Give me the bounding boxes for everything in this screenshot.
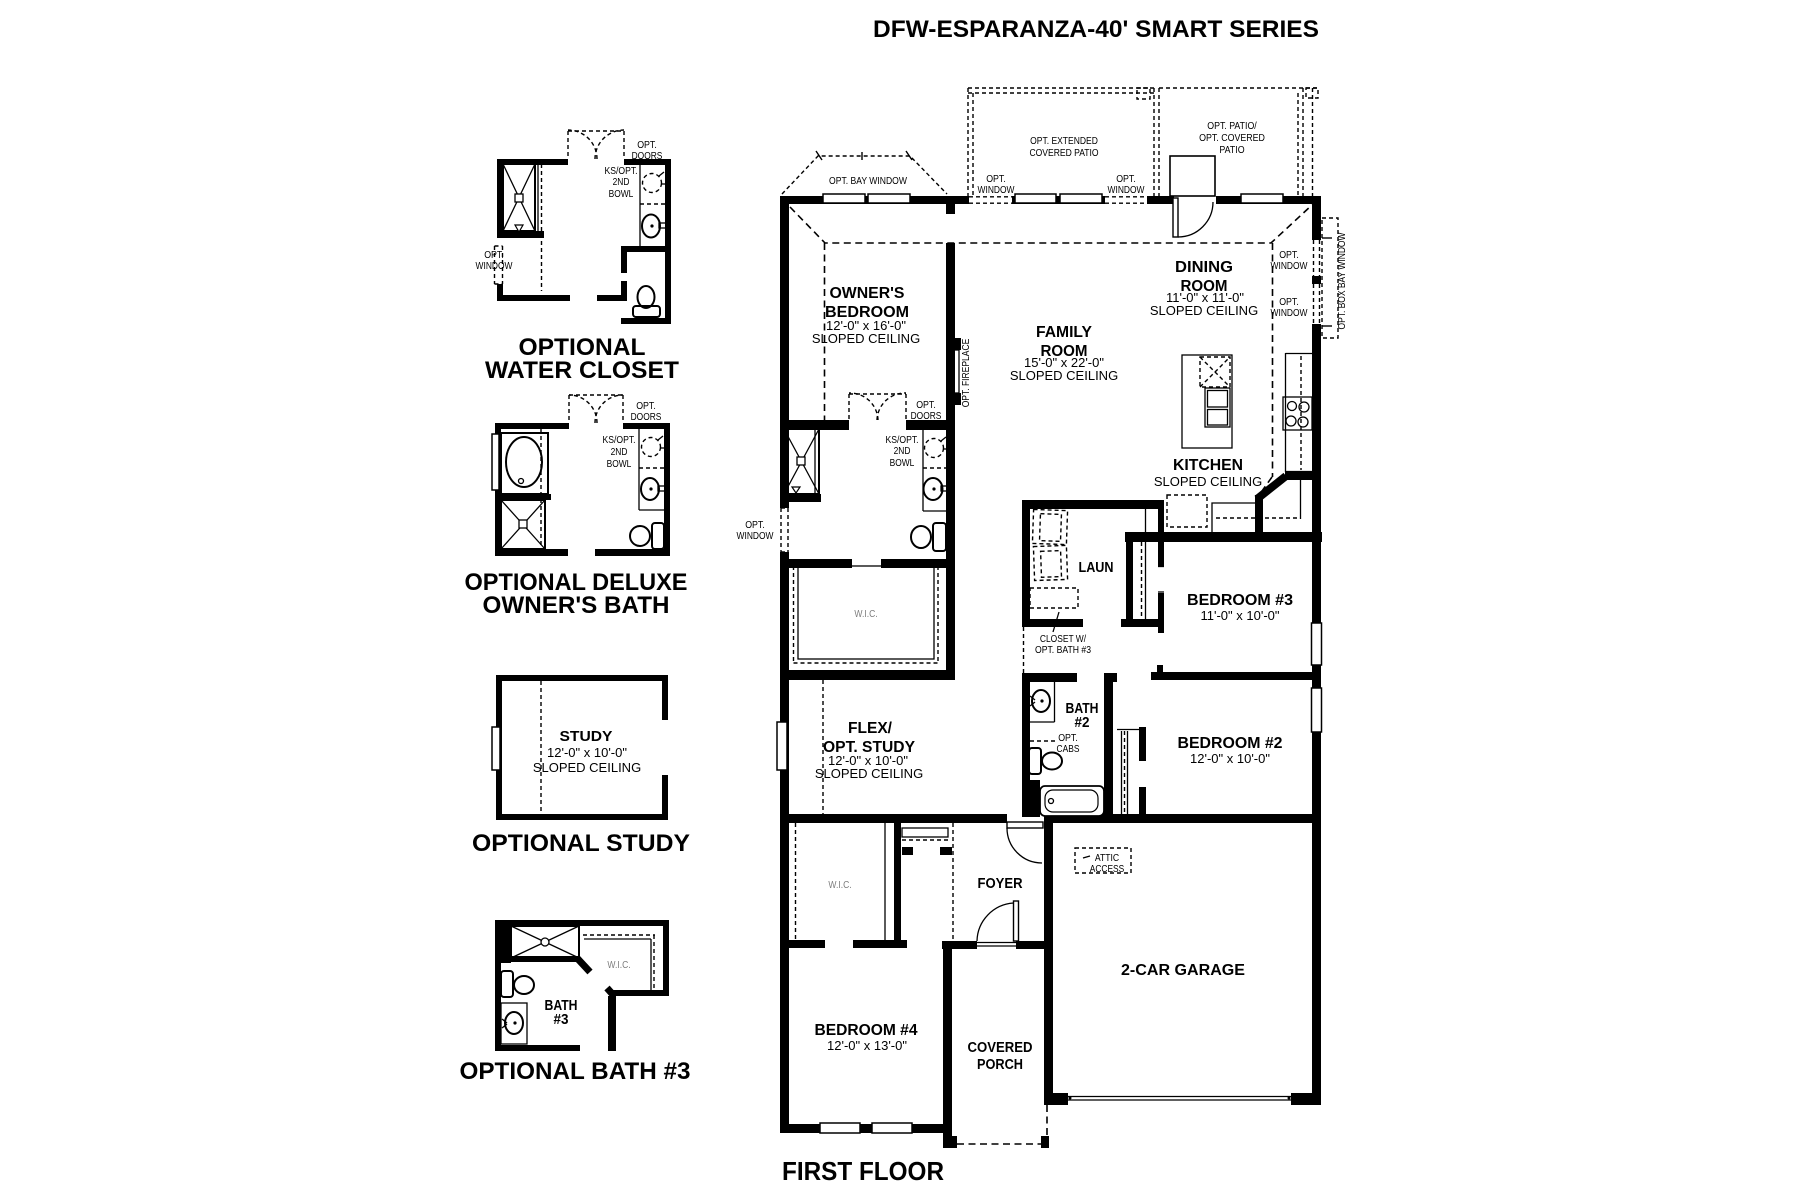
svg-text:11'-0" x 10'-0": 11'-0" x 10'-0": [1201, 608, 1280, 623]
svg-text:OPT. PATIO/: OPT. PATIO/: [1207, 121, 1257, 132]
svg-text:2ND: 2ND: [611, 447, 628, 458]
svg-text:OWNER'S: OWNER'S: [830, 285, 905, 302]
svg-text:OPT. BOX BAY WINDOW: OPT. BOX BAY WINDOW: [1337, 232, 1348, 329]
svg-text:#2: #2: [1075, 715, 1090, 731]
svg-text:ATTIC: ATTIC: [1095, 853, 1120, 864]
svg-text:KS/OPT.: KS/OPT.: [602, 435, 635, 446]
svg-text:WINDOW: WINDOW: [737, 531, 774, 542]
svg-text:WATER CLOSET: WATER CLOSET: [485, 357, 679, 384]
svg-text:FOYER: FOYER: [978, 876, 1023, 892]
svg-text:OPT. COVERED: OPT. COVERED: [1199, 133, 1265, 144]
svg-text:#3: #3: [554, 1012, 569, 1028]
svg-text:W.I.C.: W.I.C.: [607, 960, 630, 971]
svg-text:BEDROOM #4: BEDROOM #4: [815, 1022, 918, 1039]
svg-text:WINDOW: WINDOW: [1271, 261, 1308, 272]
svg-text:WINDOW: WINDOW: [1271, 308, 1308, 319]
svg-text:2ND: 2ND: [613, 177, 630, 188]
svg-text:OPT. BAY WINDOW: OPT. BAY WINDOW: [829, 176, 907, 187]
svg-text:OPT.: OPT.: [484, 250, 504, 261]
svg-text:12'-0" x 10'-0": 12'-0" x 10'-0": [547, 745, 627, 760]
svg-text:ACCESS: ACCESS: [1090, 864, 1125, 875]
svg-text:WINDOW: WINDOW: [476, 261, 513, 272]
svg-text:KS/OPT.: KS/OPT.: [885, 435, 918, 446]
svg-text:LAUN: LAUN: [1079, 560, 1114, 576]
svg-text:DFW-ESPARANZA-40' SMART SERIES: DFW-ESPARANZA-40' SMART SERIES: [873, 16, 1319, 43]
svg-text:CLOSET W/: CLOSET W/: [1040, 634, 1086, 645]
svg-text:FIRST FLOOR: FIRST FLOOR: [782, 1156, 944, 1186]
svg-text:DOORS: DOORS: [911, 411, 942, 422]
svg-text:2-CAR GARAGE: 2-CAR GARAGE: [1121, 962, 1245, 979]
svg-text:FAMILY: FAMILY: [1036, 324, 1092, 341]
svg-text:12'-0" x 10'-0": 12'-0" x 10'-0": [1190, 751, 1270, 766]
svg-text:OPT. BATH #3: OPT. BATH #3: [1035, 645, 1091, 656]
svg-text:OPTIONAL STUDY: OPTIONAL STUDY: [472, 830, 690, 857]
svg-text:SLOPED CEILING: SLOPED CEILING: [1154, 474, 1262, 489]
svg-text:OPTIONAL BATH #3: OPTIONAL BATH #3: [460, 1058, 691, 1085]
svg-text:OPT.: OPT.: [916, 400, 936, 411]
svg-text:OWNER'S BATH: OWNER'S BATH: [483, 592, 670, 619]
svg-text:OPT. EXTENDED: OPT. EXTENDED: [1030, 136, 1098, 147]
svg-text:12'-0" x 13'-0": 12'-0" x 13'-0": [827, 1038, 907, 1053]
svg-text:WINDOW: WINDOW: [978, 185, 1015, 196]
svg-text:STUDY: STUDY: [560, 729, 613, 745]
svg-text:SLOPED CEILING: SLOPED CEILING: [1150, 303, 1258, 318]
svg-text:2ND: 2ND: [894, 446, 911, 457]
svg-text:SLOPED CEILING: SLOPED CEILING: [812, 331, 920, 346]
svg-text:OPT.: OPT.: [1116, 174, 1136, 185]
svg-text:SLOPED CEILING: SLOPED CEILING: [1010, 368, 1118, 383]
svg-text:COVERED PATIO: COVERED PATIO: [1029, 148, 1098, 159]
svg-text:OPT.: OPT.: [636, 401, 656, 412]
svg-text:OPT.: OPT.: [637, 140, 657, 151]
svg-text:BOWL: BOWL: [890, 458, 915, 469]
svg-text:DOORS: DOORS: [632, 151, 663, 162]
svg-text:SLOPED CEILING: SLOPED CEILING: [533, 760, 641, 775]
svg-text:W.I.C.: W.I.C.: [854, 609, 877, 620]
svg-text:BOWL: BOWL: [607, 459, 632, 470]
svg-text:OPT.: OPT.: [1058, 733, 1078, 744]
svg-text:COVERED: COVERED: [968, 1040, 1033, 1056]
svg-text:DINING: DINING: [1175, 259, 1233, 276]
svg-text:KITCHEN: KITCHEN: [1173, 457, 1243, 474]
svg-text:OPT.: OPT.: [1279, 250, 1299, 261]
svg-text:W.I.C.: W.I.C.: [828, 880, 851, 891]
svg-text:CABS: CABS: [1057, 744, 1080, 755]
svg-text:OPT.: OPT.: [986, 174, 1006, 185]
svg-text:BEDROOM #2: BEDROOM #2: [1178, 735, 1283, 752]
svg-text:DOORS: DOORS: [631, 412, 662, 423]
svg-text:OPT.: OPT.: [745, 520, 765, 531]
svg-text:PORCH: PORCH: [977, 1057, 1023, 1073]
svg-text:BOWL: BOWL: [609, 189, 634, 200]
svg-text:PATIO: PATIO: [1219, 145, 1244, 156]
svg-text:BEDROOM #3: BEDROOM #3: [1187, 592, 1293, 609]
svg-text:WINDOW: WINDOW: [1108, 185, 1145, 196]
svg-text:KS/OPT.: KS/OPT.: [604, 166, 637, 177]
svg-text:OPT.: OPT.: [1279, 297, 1299, 308]
svg-text:OPT. FIREPLACE: OPT. FIREPLACE: [961, 339, 972, 408]
svg-text:FLEX/: FLEX/: [848, 720, 893, 737]
svg-text:SLOPED CEILING: SLOPED CEILING: [815, 766, 923, 781]
